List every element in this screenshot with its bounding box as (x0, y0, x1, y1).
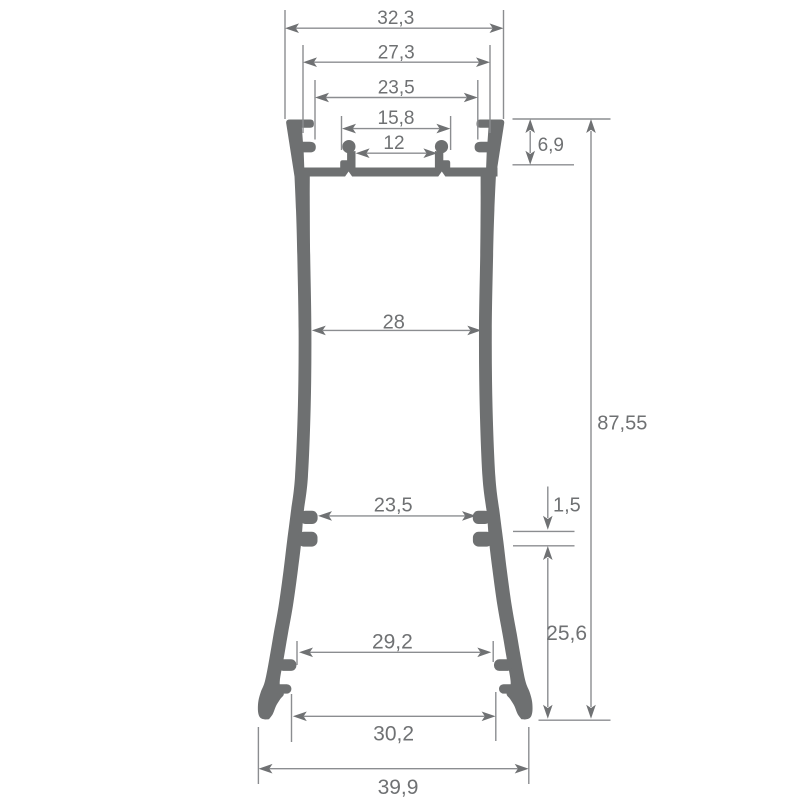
svg-text:23,5: 23,5 (374, 494, 413, 516)
svg-text:15,8: 15,8 (378, 108, 415, 129)
svg-text:12: 12 (383, 133, 404, 154)
svg-text:32,3: 32,3 (377, 8, 414, 29)
svg-text:6,9: 6,9 (538, 135, 564, 156)
svg-text:23,5: 23,5 (378, 77, 415, 98)
svg-text:28: 28 (383, 311, 405, 333)
svg-text:29,2: 29,2 (372, 630, 413, 653)
svg-text:30,2: 30,2 (373, 723, 414, 746)
svg-text:39,9: 39,9 (378, 776, 419, 799)
svg-text:27,3: 27,3 (378, 43, 415, 64)
svg-text:87,55: 87,55 (597, 412, 647, 434)
svg-text:25,6: 25,6 (546, 622, 587, 645)
svg-text:1,5: 1,5 (553, 494, 581, 516)
